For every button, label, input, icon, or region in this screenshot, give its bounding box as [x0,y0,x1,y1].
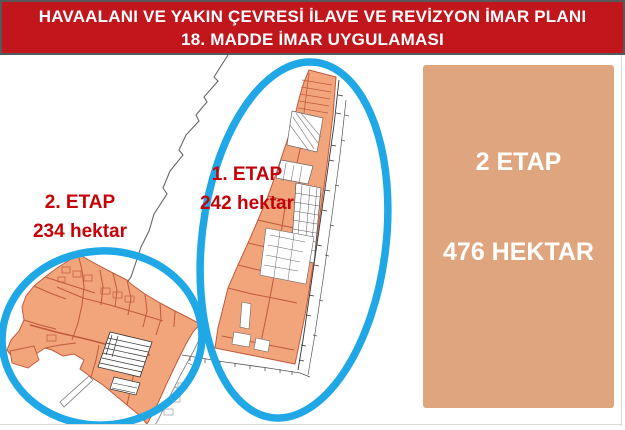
slide: HAVAALANI VE YAKIN ÇEVRESİ İLAVE VE REVİ… [0,0,625,430]
summary-etap-count: 2 ETAP [476,148,562,177]
etap2-label-title: 2. ETAP [24,192,136,214]
etap1-label: 1. ETAP 242 hektar [191,164,303,215]
slide-edge-right [621,55,622,426]
etap1-hatch-gap [287,111,323,152]
etap2-label-area: 234 hektar [24,221,136,243]
summary-total-area: 476 HEKTAR [443,238,594,267]
summary-box: 2 ETAP 476 HEKTAR [423,65,614,408]
slide-edge-bottom [0,424,622,425]
etap1-label-area: 242 hektar [191,193,303,215]
etap1-label-title: 1. ETAP [191,164,303,186]
etap2-label: 2. ETAP 234 hektar [24,192,136,243]
pier-line [60,376,93,407]
title-line-1: HAVAALANI VE YAKIN ÇEVRESİ İLAVE VE REVİ… [39,7,587,26]
title-line-2: 18. MADDE İMAR UYGULAMASI [181,30,444,49]
title-banner: HAVAALANI VE YAKIN ÇEVRESİ İLAVE VE REVİ… [0,0,625,55]
